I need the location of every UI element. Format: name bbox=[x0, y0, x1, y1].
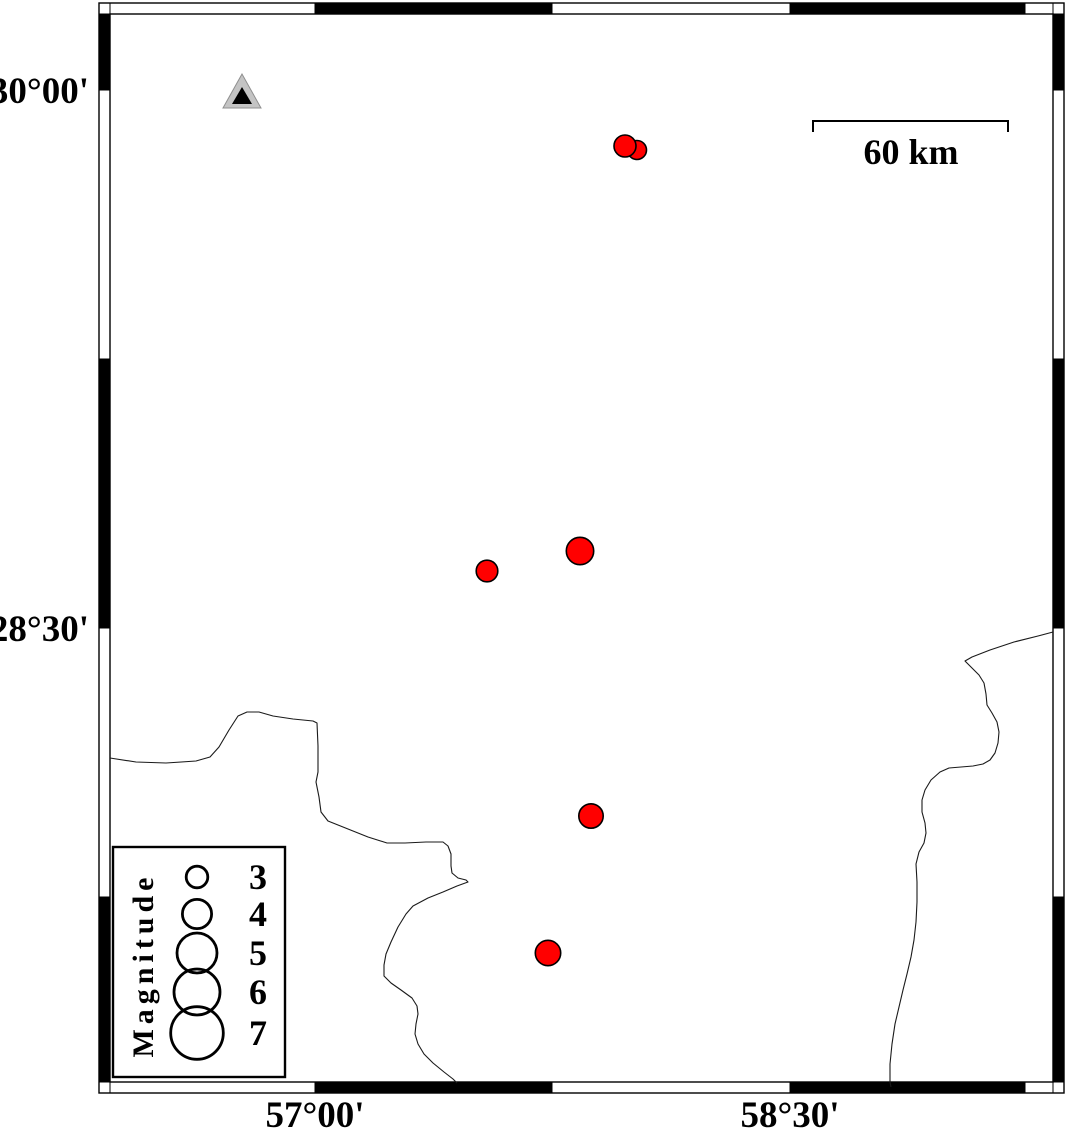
epicenter-circle bbox=[566, 537, 593, 564]
frame-segment-right bbox=[1053, 14, 1064, 90]
epicenter-circle bbox=[476, 560, 498, 582]
seismicity-map: 30°00' 28°30' 57°00' 58°30' 60 km Magnit… bbox=[0, 0, 1066, 1132]
scale-bar-bracket bbox=[813, 121, 1008, 132]
scale-bar bbox=[813, 121, 1008, 132]
lat-label-top: 30°00' bbox=[0, 71, 89, 112]
frame-segment-right bbox=[1053, 897, 1064, 1082]
frame-segment-left bbox=[99, 897, 110, 1082]
scale-bar-label: 60 km bbox=[863, 132, 958, 172]
legend-label-7: 7 bbox=[249, 1013, 267, 1053]
lon-label-right: 58°30' bbox=[740, 1095, 839, 1132]
frame-segment-bottom bbox=[315, 1082, 552, 1093]
frame-segment-bottom bbox=[790, 1082, 1025, 1093]
legend-label-3: 3 bbox=[249, 857, 267, 897]
frame-segment-top bbox=[790, 3, 1025, 14]
lat-label-bottom: 28°30' bbox=[0, 609, 89, 650]
legend-label-4: 4 bbox=[249, 894, 267, 934]
epicenter-circle bbox=[535, 940, 560, 965]
epicenter-circle bbox=[614, 135, 636, 157]
legend-label-6: 6 bbox=[249, 972, 267, 1012]
frame-segment-left bbox=[99, 359, 110, 628]
legend-label-5: 5 bbox=[249, 933, 267, 973]
epicenter-circle bbox=[579, 804, 603, 828]
frame-segment-left bbox=[99, 14, 110, 90]
frame-segment-top bbox=[315, 3, 552, 14]
epicenter-circles bbox=[476, 135, 646, 966]
boundary-east bbox=[890, 632, 1053, 1087]
frame-segment-right bbox=[1053, 359, 1064, 628]
legend-title: Magnitude bbox=[127, 872, 160, 1057]
lon-label-left: 57°00' bbox=[265, 1095, 364, 1132]
